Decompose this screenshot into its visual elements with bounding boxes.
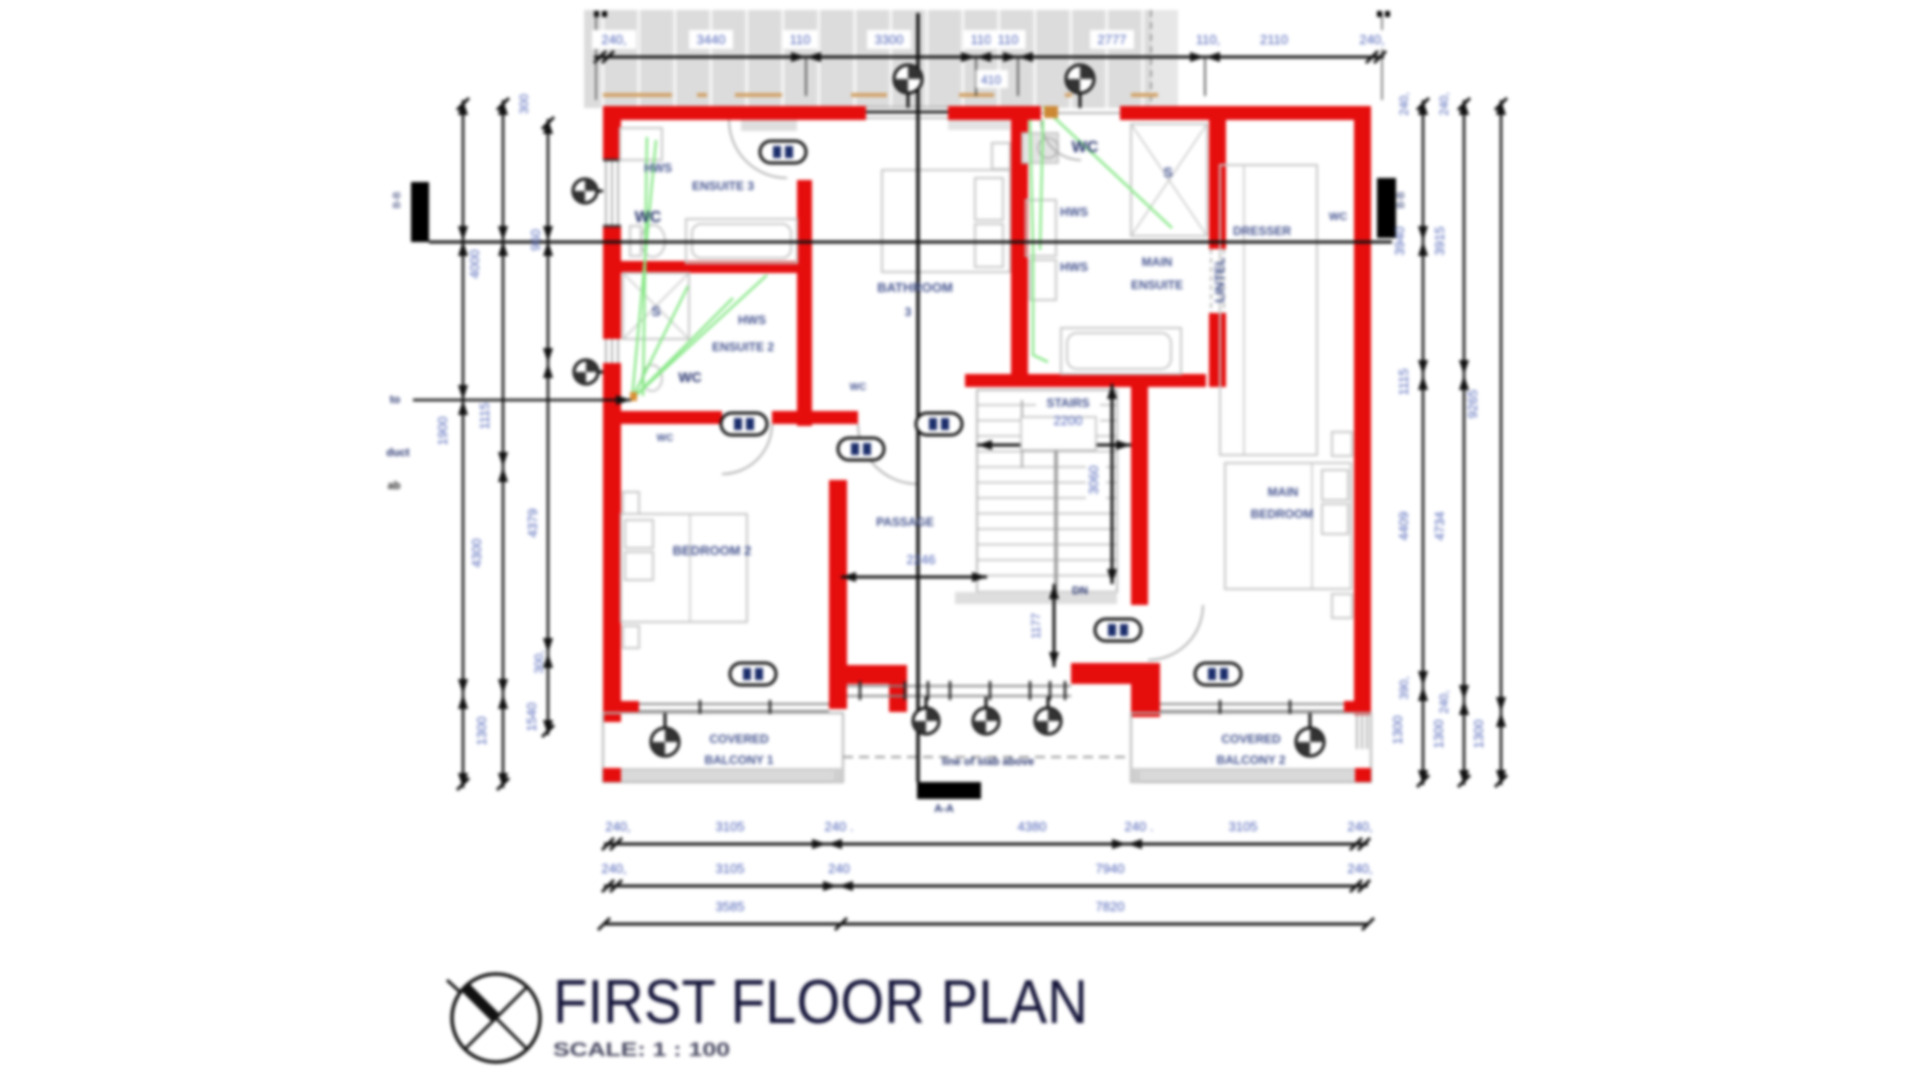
svg-text:1540: 1540 (524, 703, 539, 732)
svg-text:2200: 2200 (1054, 413, 1083, 428)
svg-text:4380: 4380 (1018, 819, 1047, 834)
svg-text:WC: WC (678, 369, 701, 385)
svg-text:960: 960 (528, 229, 543, 251)
svg-text:300: 300 (517, 94, 531, 114)
svg-text:3105: 3105 (1229, 819, 1258, 834)
svg-text:ENSUITE: ENSUITE (1131, 278, 1183, 292)
svg-text:2246: 2246 (907, 552, 936, 567)
svg-text:WC: WC (1329, 211, 1347, 223)
svg-text:1300: 1300 (474, 717, 489, 746)
svg-text:1115: 1115 (477, 403, 492, 430)
svg-text:3940: 3940 (1392, 227, 1407, 256)
svg-text:110: 110 (971, 32, 992, 47)
svg-text:1300: 1300 (1431, 720, 1446, 749)
svg-text:S: S (651, 303, 660, 319)
svg-text:ab: ab (388, 480, 401, 492)
svg-text:4379: 4379 (525, 509, 540, 538)
svg-text:to: to (390, 394, 401, 406)
svg-text:240,: 240, (1347, 861, 1372, 876)
svg-text:BATHROOM: BATHROOM (877, 280, 953, 295)
svg-text:240,: 240, (601, 32, 626, 47)
svg-text:WC: WC (1072, 139, 1099, 156)
svg-text:4409: 4409 (1396, 512, 1411, 541)
svg-text:WC: WC (657, 433, 674, 444)
svg-text:240 .: 240 . (825, 819, 854, 834)
svg-text:240,: 240, (1437, 690, 1451, 713)
svg-text:1300: 1300 (1390, 716, 1405, 745)
svg-text:7820: 7820 (1096, 899, 1125, 914)
svg-text:COVERED: COVERED (1221, 732, 1281, 746)
svg-text:SCALE: 1 : 100: SCALE: 1 : 100 (553, 1040, 730, 1061)
svg-text:HWS: HWS (1060, 260, 1088, 274)
svg-text:3585: 3585 (716, 899, 745, 914)
svg-text:410: 410 (981, 73, 1001, 87)
svg-text:110: 110 (998, 32, 1019, 47)
svg-text:STAIRS: STAIRS (1046, 396, 1089, 410)
svg-text:390,: 390, (1397, 676, 1411, 699)
svg-text:1177: 1177 (1029, 613, 1043, 639)
svg-text:3300: 3300 (875, 32, 904, 47)
svg-text:110: 110 (790, 32, 811, 47)
svg-text:7940: 7940 (1096, 861, 1125, 876)
svg-text:240,: 240, (1347, 819, 1372, 834)
svg-text:300,: 300, (532, 650, 546, 673)
svg-text:BEDROOM 2: BEDROOM 2 (673, 543, 752, 558)
svg-text:240,: 240, (601, 861, 626, 876)
svg-text:3440: 3440 (697, 32, 726, 47)
svg-text:WC: WC (850, 382, 867, 393)
svg-text:MAIN: MAIN (1268, 485, 1299, 499)
svg-text:B-B: B-B (392, 191, 403, 208)
svg-text:B-B: B-B (1396, 191, 1407, 208)
svg-text:MAIN: MAIN (1142, 255, 1173, 269)
svg-text:240,: 240, (1359, 32, 1384, 47)
svg-text:4734: 4734 (1432, 512, 1447, 541)
svg-text:DN: DN (1072, 585, 1088, 597)
svg-text:1115: 1115 (1396, 369, 1411, 396)
svg-text:duct: duct (386, 447, 410, 459)
svg-text:3060: 3060 (1086, 466, 1101, 495)
svg-text:9265: 9265 (1465, 390, 1480, 419)
svg-text:240,: 240, (1437, 92, 1451, 115)
svg-text:PASSAGE: PASSAGE (876, 515, 934, 529)
svg-text:BALCONY 2: BALCONY 2 (1216, 753, 1285, 767)
svg-text:LINTEL: LINTEL (1212, 257, 1227, 303)
svg-text:FIRST FLOOR PLAN: FIRST FLOOR PLAN (553, 968, 1088, 1037)
svg-text:240: 240 (828, 861, 850, 876)
svg-text:3105: 3105 (716, 861, 745, 876)
svg-text:ENSUITE 2: ENSUITE 2 (712, 340, 774, 354)
svg-text:4300: 4300 (469, 539, 484, 568)
svg-text:ENSUITE 3: ENSUITE 3 (692, 179, 754, 193)
svg-text:HWS: HWS (1060, 205, 1088, 219)
svg-text:BALCONY 1: BALCONY 1 (704, 753, 773, 767)
svg-text:3105: 3105 (716, 819, 745, 834)
svg-text:240 .: 240 . (1125, 819, 1154, 834)
svg-text:110,: 110, (1196, 32, 1220, 47)
svg-text:S: S (1163, 164, 1172, 180)
svg-text:2110: 2110 (1260, 32, 1288, 47)
svg-text:COVERED: COVERED (709, 732, 769, 746)
svg-text:A-A: A-A (934, 803, 954, 815)
svg-text:WC: WC (635, 209, 662, 226)
svg-text:DRESSER: DRESSER (1233, 224, 1291, 238)
svg-text:1900: 1900 (435, 417, 450, 446)
svg-text:4000: 4000 (467, 250, 482, 279)
svg-text:HWS: HWS (644, 161, 672, 175)
svg-text:240,: 240, (605, 819, 630, 834)
svg-text:1300: 1300 (1471, 720, 1486, 749)
svg-text:HWS: HWS (738, 313, 766, 327)
svg-text:3915: 3915 (1432, 227, 1447, 256)
svg-text:2777: 2777 (1098, 32, 1127, 47)
svg-text:line of slab above: line of slab above (942, 756, 1034, 768)
svg-text:240,: 240, (1397, 92, 1411, 115)
svg-text:BEDROOM: BEDROOM (1251, 507, 1314, 521)
svg-text:3: 3 (905, 305, 912, 319)
